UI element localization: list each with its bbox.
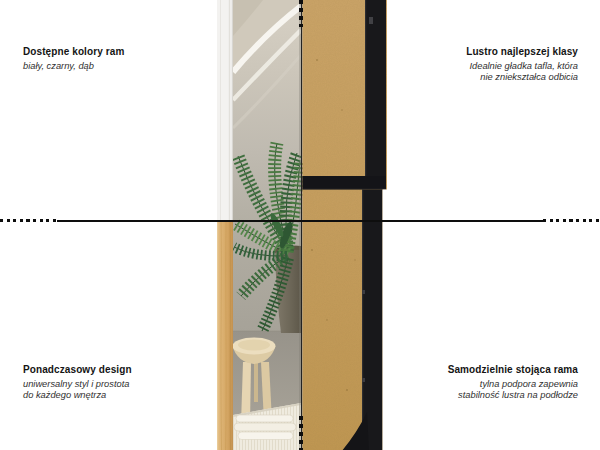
mirror-frame-white-segment	[217, 0, 233, 221]
split-seam	[301, 0, 302, 450]
hanger-mark	[369, 17, 373, 24]
annotation-mirror-quality: Lustro najlepszej klasy Idealnie gładka …	[466, 46, 578, 83]
annotation-standing-frame: Samodzielnie stojąca rama tylna podpora …	[448, 364, 578, 401]
annotation-title: Dostępne kolory ram	[23, 46, 124, 58]
infographic-canvas: Dostępne kolory ram biały, czarny, dąb L…	[0, 0, 600, 450]
mirror-front-half	[217, 0, 301, 450]
divider-horizontal-solid	[57, 220, 543, 222]
annotation-subtitle: biały, czarny, dąb	[23, 61, 124, 72]
annotation-timeless-design: Ponadczasowy design uniwersalny styl i p…	[23, 364, 132, 401]
mirror-frame-oak-segment	[217, 221, 233, 450]
mirror-edge-shade	[299, 0, 301, 450]
annotation-subtitle: Idealnie gładka tafla, która nie znieksz…	[466, 61, 578, 83]
product-photo	[217, 0, 387, 450]
back-frame-lower	[362, 190, 387, 450]
annotation-title: Lustro najlepszej klasy	[466, 46, 578, 58]
annotation-title: Ponadczasowy design	[23, 364, 132, 376]
back-frame-black	[365, 0, 386, 176]
product-photo-illustration	[217, 0, 387, 450]
divider-vertical-dotted-top	[299, 0, 302, 27]
back-support-bar	[302, 176, 386, 190]
annotation-subtitle: uniwersalny styl i prostota do każdego w…	[23, 379, 132, 401]
divider-vertical-dotted-bottom	[299, 416, 302, 450]
divider-horizontal-dotted-right	[543, 219, 600, 222]
annotation-title: Samodzielnie stojąca rama	[448, 364, 578, 376]
divider-horizontal-dotted-left	[0, 219, 57, 222]
mirror-back-half	[302, 0, 387, 450]
annotation-subtitle: tylna podpora zapewnia stabilność lustra…	[448, 379, 578, 401]
annotation-frame-colors: Dostępne kolory ram biały, czarny, dąb	[23, 46, 124, 72]
